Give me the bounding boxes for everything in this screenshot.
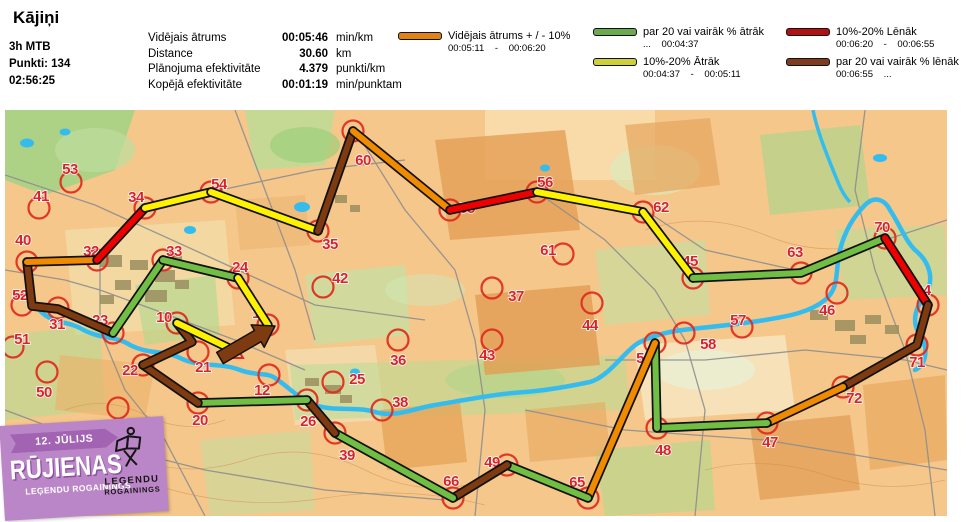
checkpoint-number-40: 40 [15, 232, 31, 249]
checkpoint-number-25: 25 [349, 371, 365, 388]
checkpoint-number-72: 72 [846, 390, 862, 407]
event-info: 3h MTB Punkti: 134 02:56:25 [9, 39, 70, 90]
legend-item: par 20 vai vairāk % ātrāk [593, 26, 764, 38]
page-title: Kājiņi [13, 8, 59, 28]
checkpoint-number-39: 39 [339, 447, 355, 464]
checkpoint-number-37: 37 [508, 288, 524, 305]
legend-item: 10%-20% Lēnāk [786, 26, 959, 38]
checkpoint-number-44: 44 [582, 317, 599, 334]
legend-color-faster [593, 58, 637, 66]
logo-badge: LEĢENDU ROGAININGS [98, 424, 164, 497]
legend-range: 00:05:11 - 00:06:20 [448, 43, 570, 54]
checkpoint-number-57: 57 [730, 312, 746, 329]
checkpoint-number-47: 47 [762, 434, 778, 451]
class-label: 3h MTB [9, 39, 70, 56]
orienteer-icon [109, 425, 151, 469]
checkpoint-number-38: 38 [392, 394, 408, 411]
checkpoint-number-50: 50 [36, 384, 52, 401]
total-time-label: 02:56:25 [9, 73, 70, 90]
checkpoint-number-62: 62 [653, 199, 669, 216]
checkpoint-number-34: 34 [128, 189, 145, 206]
checkpoint-number-41: 41 [33, 188, 49, 205]
checkpoint-number-20: 20 [192, 412, 208, 429]
checkpoint-number-48: 48 [655, 442, 671, 459]
checkpoint-number-58: 58 [700, 336, 716, 353]
legend-color-much-faster [593, 28, 637, 36]
stat-row: Plānojuma efektivitāte4.379punkti/km [148, 62, 402, 78]
stat-row: Kopējā efektivitāte00:01:19min/punktam [148, 78, 402, 94]
legend-slower: 10%-20% Lēnāk 00:06:20 - 00:06:55 par 20… [786, 26, 959, 86]
legend-faster: par 20 vai vairāk % ātrāk ... 00:04:37 1… [593, 26, 764, 86]
legend-item: par 20 vai vairāk % lēnāk [786, 56, 959, 68]
checkpoint-number-46: 46 [819, 302, 835, 319]
legend-color-average [398, 32, 442, 40]
event-logo: 12. JŪLIJS RŪJIENAS LEĢENDU ROGAININGS L… [0, 416, 169, 521]
legend-color-slower [786, 28, 830, 36]
legend-item: Vidējais ātrums + / - 10% [398, 30, 570, 42]
checkpoint-number-60: 60 [355, 152, 371, 169]
checkpoint-number-21: 21 [195, 359, 211, 376]
points-label: Punkti: 134 [9, 56, 70, 73]
legend-range: 00:06:55 ... [836, 69, 959, 80]
checkpoint-number-63: 63 [787, 244, 803, 261]
legend-item: 10%-20% Ātrāk [593, 56, 764, 68]
checkpoint-number-71: 71 [909, 354, 925, 371]
legend-range: ... 00:04:37 [643, 39, 764, 50]
legend-range: 00:06:20 - 00:06:55 [836, 39, 959, 50]
checkpoint-number-26: 26 [300, 413, 316, 430]
stats-table: Vidējais ātrums00:05:46min/km Distance30… [148, 31, 402, 93]
checkpoint-number-43: 43 [479, 347, 495, 364]
checkpoint-number-42: 42 [332, 270, 348, 287]
checkpoint-number-70: 70 [874, 219, 890, 236]
checkpoint-number-66: 66 [443, 473, 459, 490]
checkpoint-number-22: 22 [122, 362, 138, 379]
checkpoint-number-31: 31 [49, 316, 65, 333]
route-map: 1101220212223242526303132333435363738394… [5, 110, 947, 516]
stat-row: Distance30.60km [148, 47, 402, 63]
stat-row: Vidējais ātrums00:05:46min/km [148, 31, 402, 47]
legend-range: 00:04:37 - 00:05:11 [643, 69, 764, 80]
checkpoint-number-35: 35 [322, 236, 338, 253]
checkpoint-number-61: 61 [540, 242, 556, 259]
route-leg-green [655, 343, 657, 428]
route-leg-green [198, 400, 307, 403]
checkpoint-number-10: 10 [156, 309, 172, 326]
legend-color-much-slower [786, 58, 830, 66]
checkpoint-number-36: 36 [390, 352, 406, 369]
checkpoint-number-51: 51 [14, 331, 30, 348]
checkpoint-number-53: 53 [62, 161, 78, 178]
route-leg-orange [27, 260, 97, 262]
legend-average: Vidējais ātrums + / - 10% 00:05:11 - 00:… [398, 30, 570, 60]
